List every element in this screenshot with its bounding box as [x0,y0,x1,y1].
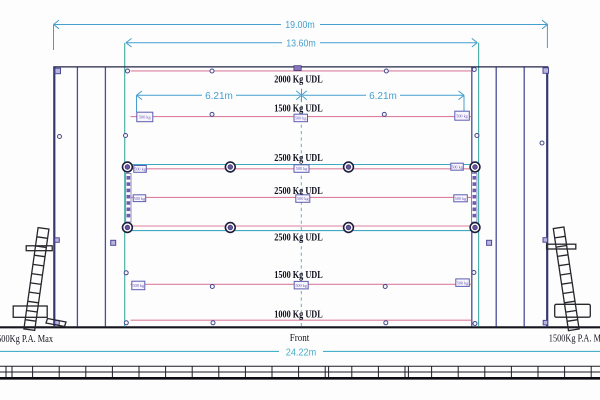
svg-text:13.60m: 13.60m [286,39,316,50]
svg-text:500 kg: 500 kg [139,115,151,120]
svg-text:6.21m: 6.21m [369,91,397,102]
svg-text:19.00m: 19.00m [285,20,315,31]
svg-text:2500 Kg UDL: 2500 Kg UDL [274,153,323,164]
svg-text:500 kg: 500 kg [134,167,146,172]
svg-text:1500Kg P.A. Max: 1500Kg P.A. Max [549,334,600,345]
svg-text:500 kg: 500 kg [295,116,307,121]
svg-text:500 kg: 500 kg [456,113,468,118]
svg-text:500 kg: 500 kg [133,283,145,288]
svg-text:1500 Kg UDL: 1500 Kg UDL [274,103,323,114]
svg-text:500 kg: 500 kg [455,196,467,201]
svg-text:2000 Kg UDL: 2000 Kg UDL [274,75,323,86]
svg-text:Front: Front [290,333,310,344]
svg-text:500 kg: 500 kg [451,164,463,169]
svg-text:500 kg: 500 kg [296,166,308,171]
svg-text:1500 Kg UDL: 1500 Kg UDL [274,270,323,281]
svg-text:6.21m: 6.21m [205,91,233,102]
svg-text:1500Kg P.A. Max: 1500Kg P.A. Max [0,334,53,345]
svg-text:2500 Kg UDL: 2500 Kg UDL [274,232,323,243]
svg-text:24.22m: 24.22m [286,348,317,359]
svg-text:500 kg: 500 kg [134,196,146,201]
svg-text:500 kg: 500 kg [295,283,307,288]
svg-text:1000 Kg UDL: 1000 Kg UDL [274,309,323,320]
svg-text:500 kg: 500 kg [297,196,309,201]
svg-text:500 kg: 500 kg [457,280,469,285]
